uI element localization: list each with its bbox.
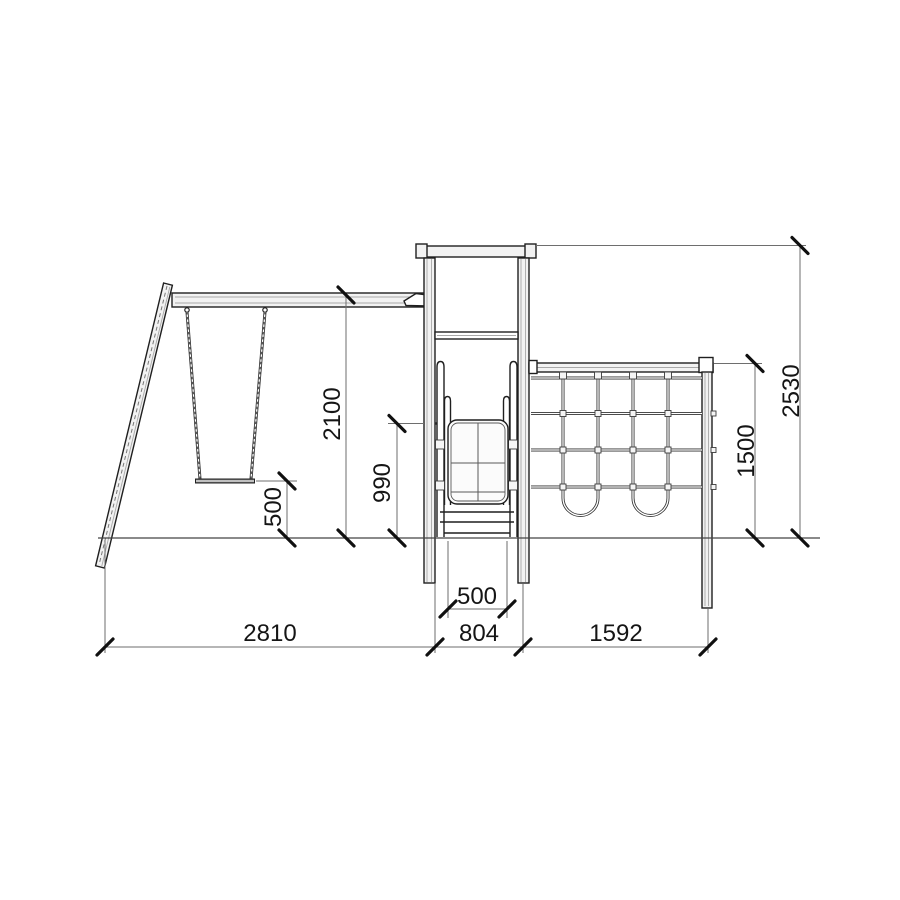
playground-elevation-drawing: 2810 804 1592 500 2100 990 500 1500 2530 bbox=[0, 0, 900, 900]
net-stub bbox=[630, 372, 637, 379]
dim-label-overall-height: 2530 bbox=[778, 364, 805, 417]
net-stub bbox=[560, 372, 567, 379]
net-stub bbox=[665, 372, 672, 379]
swing-chain-right bbox=[251, 312, 265, 479]
net-ropes bbox=[531, 372, 702, 516]
climbing-net-assembly bbox=[529, 358, 716, 609]
handrail-clamp bbox=[509, 440, 518, 449]
chain-hook bbox=[263, 308, 267, 312]
dim-label-swing-span: 2810 bbox=[243, 620, 296, 647]
chain-hook bbox=[185, 308, 189, 312]
net-bar-right-clamp bbox=[699, 358, 713, 373]
rope-end-stub bbox=[711, 448, 716, 453]
dim-label-platform-height: 990 bbox=[369, 463, 396, 503]
dim-label-beam-height: 2100 bbox=[319, 387, 346, 440]
tower-cap bbox=[420, 246, 532, 257]
tower-cap-end bbox=[416, 244, 427, 258]
handrail-clamp bbox=[436, 440, 445, 449]
a-frame-leg-shade bbox=[102, 287, 170, 566]
swing-beam bbox=[172, 293, 424, 307]
dim-label-net-height: 1500 bbox=[733, 424, 760, 477]
rope-end-stub bbox=[711, 411, 716, 416]
a-frame-leg-hatch bbox=[99, 286, 167, 565]
swing-chain-left bbox=[187, 312, 200, 479]
technical-drawing-page: 2810 804 1592 500 2100 990 500 1500 2530 bbox=[0, 0, 900, 900]
net-stub bbox=[595, 372, 602, 379]
net-post-right bbox=[702, 372, 712, 608]
a-frame-leg bbox=[96, 283, 173, 568]
dim-label-seat-height: 500 bbox=[260, 487, 287, 527]
handrail-clamp bbox=[509, 481, 518, 490]
dim-label-slide-width: 500 bbox=[457, 583, 497, 610]
dim-label-tower-span: 804 bbox=[459, 620, 499, 647]
handrail-clamp bbox=[436, 481, 445, 490]
rope-end-stub bbox=[711, 485, 716, 490]
tower-cap-end bbox=[525, 244, 536, 258]
tower-assembly bbox=[416, 244, 536, 583]
net-bar-left-fitting bbox=[529, 361, 537, 374]
tower-post-right bbox=[518, 258, 529, 583]
dim-label-net-span: 1592 bbox=[589, 620, 642, 647]
tower-post-left bbox=[424, 258, 435, 583]
